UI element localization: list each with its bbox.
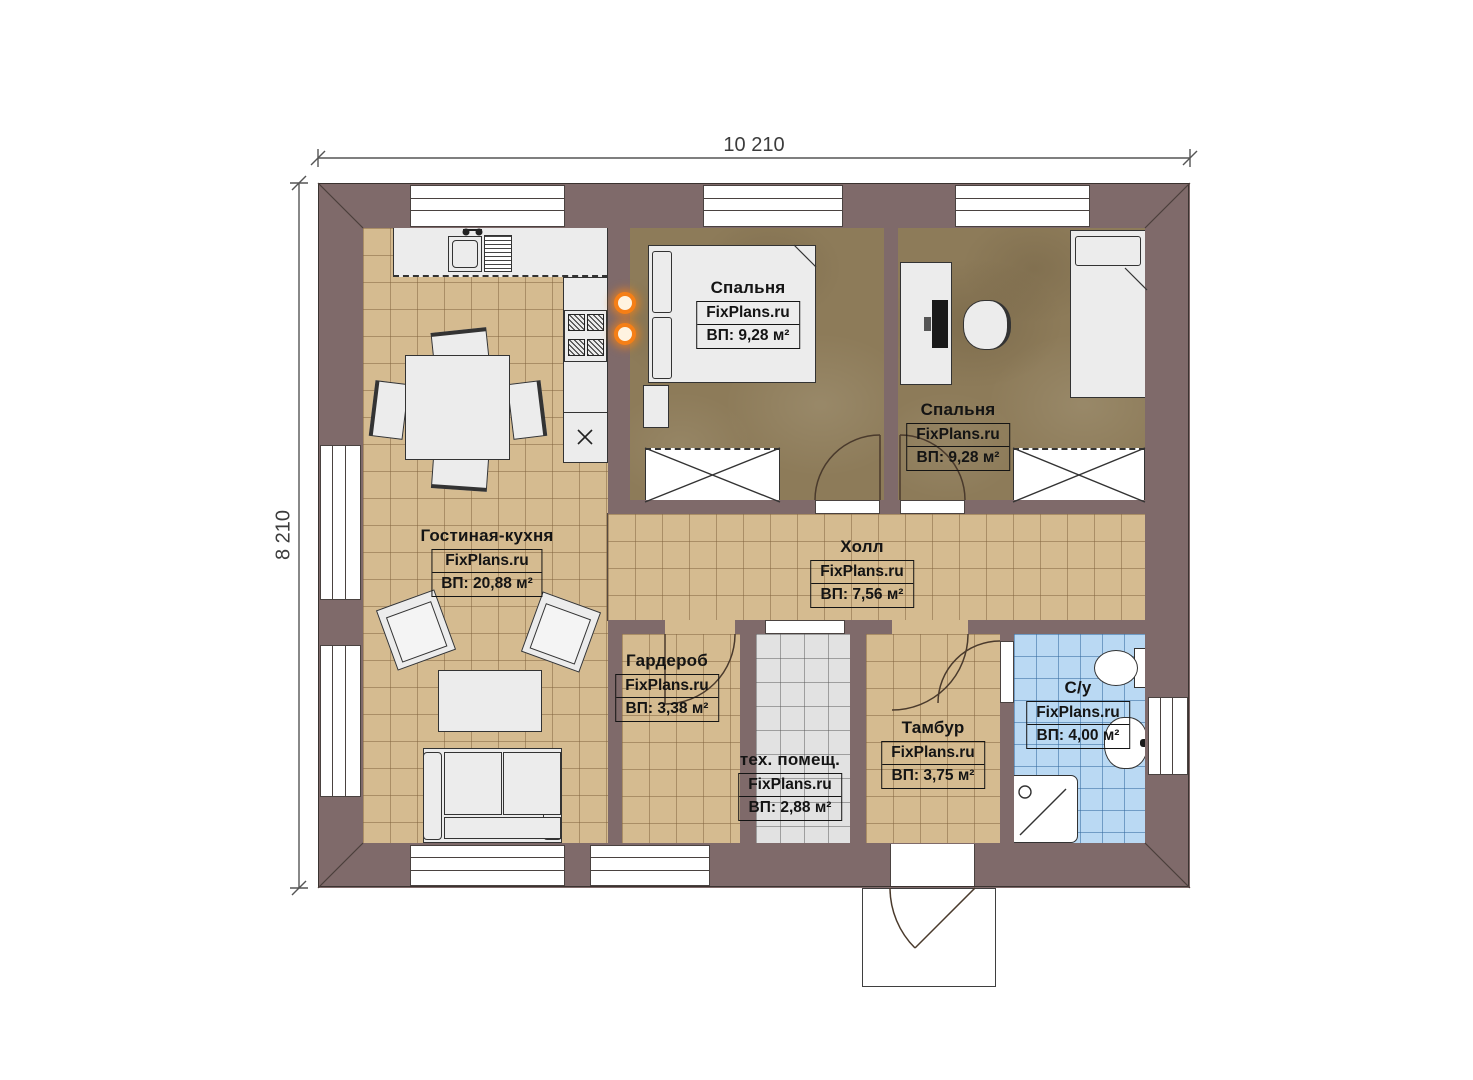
- wall-segment: [850, 620, 866, 843]
- floor-plan-canvas: 10 210 8 210 Спальня FixPlans.ru ВП: 9,2…: [0, 0, 1473, 1080]
- room-label-living: Гостиная-кухня FixPlans.ru ВП: 20,88 м²: [420, 526, 553, 597]
- wall-segment: [880, 500, 900, 514]
- room-label-tech: тех. помещ. FixPlans.ru ВП: 2,88 м²: [738, 750, 842, 821]
- sofa: [423, 748, 562, 843]
- wall-segment: [1000, 703, 1014, 843]
- window: [410, 185, 565, 227]
- wardrobe-cabinet: [645, 448, 780, 502]
- shower-tray: [1008, 775, 1078, 843]
- room-area: ВП: 4,00 м²: [1027, 725, 1129, 748]
- room-info-box: FixPlans.ru ВП: 9,28 м²: [906, 423, 1010, 471]
- pillow: [652, 317, 672, 379]
- room-label-wardrobe: Гардероб FixPlans.ru ВП: 3,38 м²: [615, 651, 719, 722]
- wall-segment: [630, 500, 815, 514]
- desk-chair: [963, 300, 1011, 350]
- wardrobe-cabinet: [1013, 448, 1145, 502]
- room-area: ВП: 20,88 м²: [432, 573, 542, 596]
- room-title: Гардероб: [626, 651, 708, 671]
- entrance-door-opening: [890, 844, 975, 887]
- room-label-hall: Холл FixPlans.ru ВП: 7,56 м²: [810, 537, 914, 608]
- armchair-seat: [386, 601, 448, 663]
- room-info-box: FixPlans.ru ВП: 3,75 м²: [881, 741, 985, 789]
- room-label-bathroom: С/у FixPlans.ru ВП: 4,00 м²: [1026, 678, 1130, 749]
- coffee-table: [438, 670, 542, 732]
- dimension-height-label: 8 210: [273, 510, 296, 560]
- wall-lamp-icon: [614, 323, 636, 345]
- porch: [862, 888, 996, 987]
- wall-segment: [968, 620, 1145, 634]
- sofa-back: [444, 817, 561, 839]
- room-label-bedroom1: Спальня FixPlans.ru ВП: 9,28 м²: [696, 278, 800, 349]
- door-opening: [892, 620, 968, 634]
- wall-segment: [608, 228, 630, 514]
- room-info-box: FixPlans.ru ВП: 3,38 м²: [615, 674, 719, 722]
- sink-basin: [452, 240, 478, 268]
- door-threshold: [815, 500, 880, 514]
- nightstand: [643, 385, 669, 428]
- room-area: ВП: 7,56 м²: [811, 584, 913, 607]
- burner-icon: [587, 339, 604, 356]
- room-area: ВП: 3,38 м²: [616, 698, 718, 721]
- monitor-icon: [932, 300, 948, 348]
- wall-segment: [965, 500, 1145, 514]
- window: [955, 185, 1090, 227]
- pillow: [652, 251, 672, 313]
- watermark-text: FixPlans.ru: [907, 424, 1009, 447]
- window: [410, 845, 565, 886]
- room-info-box: FixPlans.ru ВП: 2,88 м²: [738, 773, 842, 821]
- stove: [564, 310, 607, 362]
- room-label-tambour: Тамбур FixPlans.ru ВП: 3,75 м²: [881, 718, 985, 789]
- dining-chair: [507, 380, 548, 440]
- room-label-bedroom2: Спальня FixPlans.ru ВП: 9,28 м²: [906, 400, 1010, 471]
- room-title: Спальня: [711, 278, 786, 298]
- burner-icon: [568, 314, 585, 331]
- sofa-cushion: [503, 752, 561, 815]
- room-area: ВП: 3,75 м²: [882, 765, 984, 788]
- sofa-cushion: [444, 752, 502, 815]
- pillow: [1075, 236, 1141, 266]
- wall-lamp-icon: [614, 292, 636, 314]
- wall-segment: [1000, 620, 1014, 641]
- watermark-text: FixPlans.ru: [432, 550, 542, 573]
- washing-machine: [563, 412, 608, 463]
- room-title: Гостиная-кухня: [420, 526, 553, 546]
- room-info-box: FixPlans.ru ВП: 7,56 м²: [810, 560, 914, 608]
- dining-table: [405, 355, 510, 460]
- watermark-text: FixPlans.ru: [697, 302, 799, 325]
- room-area: ВП: 9,28 м²: [907, 447, 1009, 470]
- door-threshold: [1000, 641, 1014, 703]
- wall-segment: [884, 228, 898, 500]
- door-threshold: [765, 620, 845, 634]
- sofa-armrest: [423, 752, 442, 840]
- door-threshold: [900, 500, 965, 514]
- room-area: ВП: 9,28 м²: [697, 325, 799, 348]
- door-opening: [665, 620, 735, 634]
- burner-icon: [587, 314, 604, 331]
- room-info-box: FixPlans.ru ВП: 20,88 м²: [431, 549, 543, 597]
- window: [320, 645, 361, 797]
- burner-icon: [568, 339, 585, 356]
- monitor-stand: [924, 317, 931, 331]
- room-title: Спальня: [921, 400, 996, 420]
- watermark-text: FixPlans.ru: [811, 561, 913, 584]
- room-info-box: FixPlans.ru ВП: 9,28 м²: [696, 301, 800, 349]
- watermark-text: FixPlans.ru: [1027, 702, 1129, 725]
- window: [320, 445, 361, 600]
- room-title: С/у: [1064, 678, 1091, 698]
- watermark-text: FixPlans.ru: [739, 774, 841, 797]
- room-info-box: FixPlans.ru ВП: 4,00 м²: [1026, 701, 1130, 749]
- room-title: Холл: [840, 537, 883, 557]
- armchair-seat: [530, 603, 592, 665]
- window: [703, 185, 843, 227]
- dimension-width-label: 10 210: [723, 134, 784, 157]
- room-area: ВП: 2,88 м²: [739, 797, 841, 820]
- drainboard: [484, 235, 512, 272]
- dining-chair: [369, 380, 410, 440]
- watermark-text: FixPlans.ru: [616, 675, 718, 698]
- watermark-text: FixPlans.ru: [882, 742, 984, 765]
- room-title: тех. помещ.: [740, 750, 840, 770]
- window: [590, 845, 710, 886]
- room-title: Тамбур: [902, 718, 965, 738]
- kitchen-sink: [448, 236, 482, 272]
- wall-segment: [1145, 183, 1190, 888]
- window: [1148, 697, 1188, 775]
- single-bed: [1070, 230, 1147, 398]
